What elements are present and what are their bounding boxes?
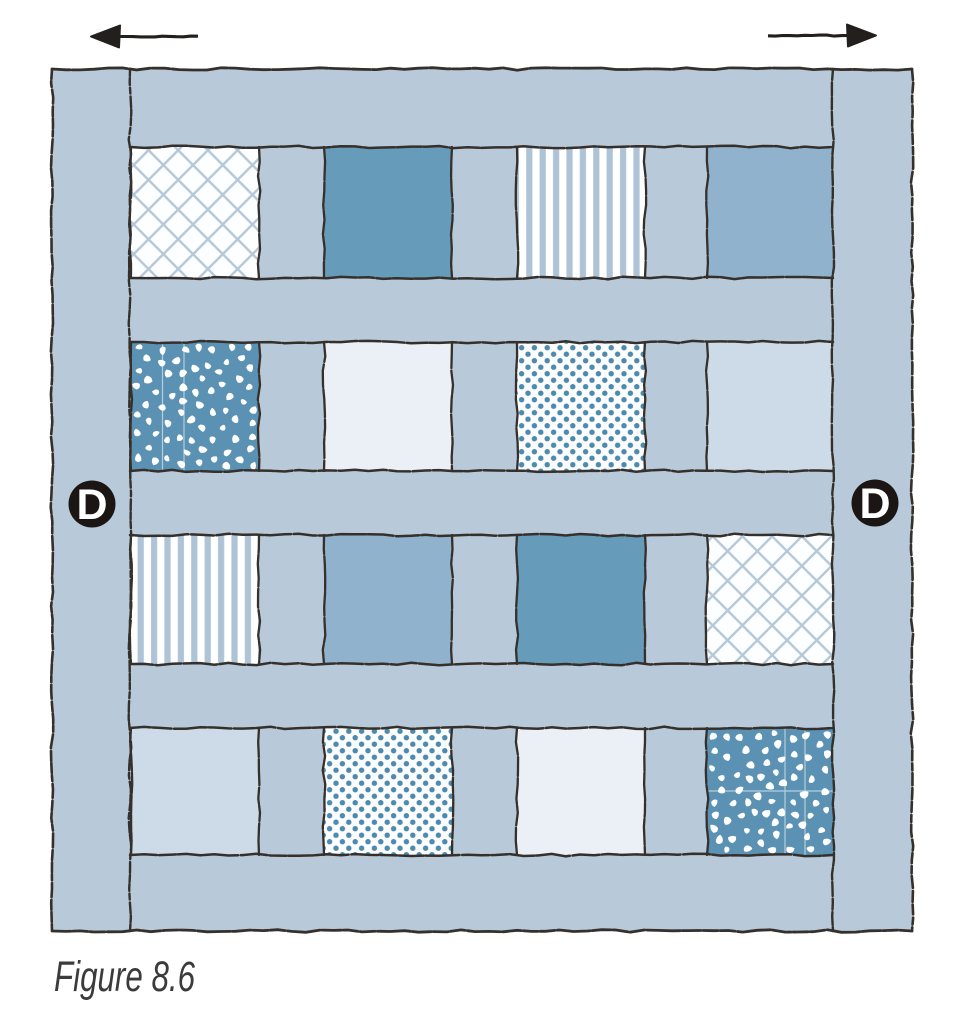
svg-text:D: D: [859, 480, 890, 528]
svg-text:Figure 8.6: Figure 8.6: [54, 953, 195, 1001]
svg-text:D: D: [76, 481, 107, 529]
